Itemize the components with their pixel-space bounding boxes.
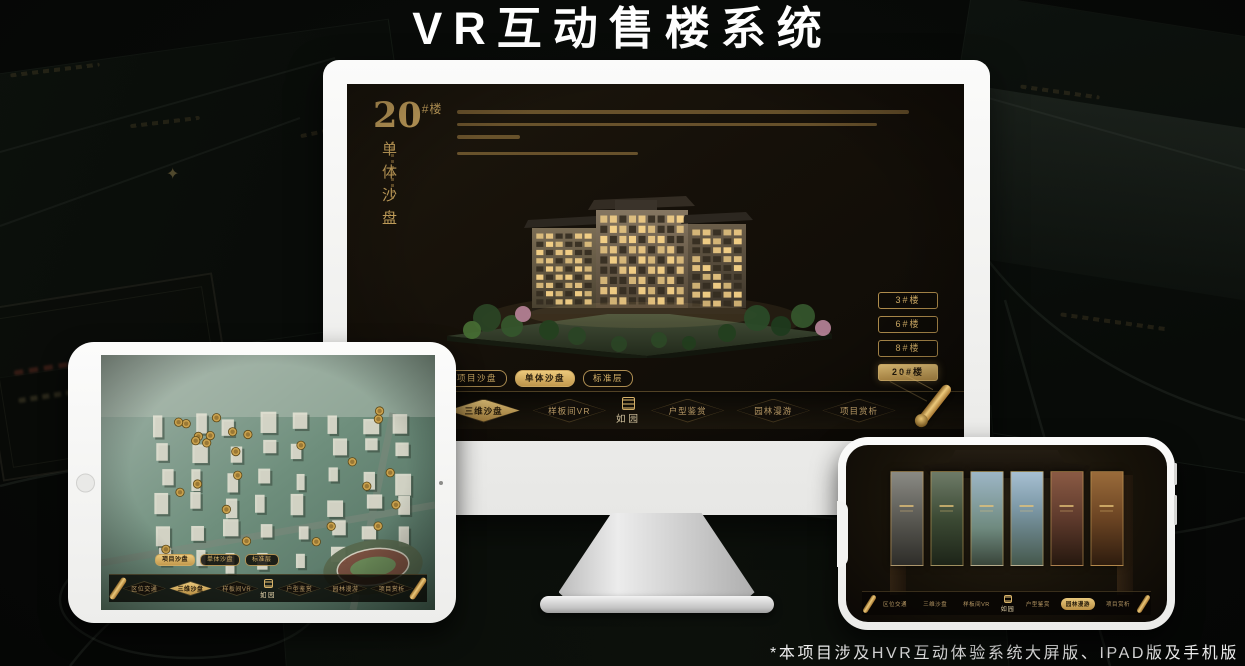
- nav-item-户型鉴赏[interactable]: 户型鉴赏: [1021, 598, 1055, 610]
- scene-card[interactable]: [1050, 471, 1083, 566]
- scene-card[interactable]: [890, 471, 923, 566]
- nav-item-label: 园林漫游: [332, 584, 358, 593]
- scene-card[interactable]: [1010, 471, 1043, 566]
- brand-logo[interactable]: 如园: [260, 579, 276, 599]
- hero-english-caption: [391, 142, 394, 202]
- brand-logo[interactable]: 如园: [616, 397, 641, 425]
- brand-name: 如园: [616, 411, 641, 425]
- scroll-menu-icon[interactable]: [1136, 594, 1151, 614]
- nav-item-园林漫游[interactable]: 园林漫游: [1061, 598, 1095, 610]
- scene-card[interactable]: [970, 471, 1003, 566]
- view-tab-单体沙盘[interactable]: 单体沙盘: [515, 370, 575, 387]
- nav-item-label: 样板间VR: [548, 405, 590, 417]
- nav-item-项目赏析[interactable]: 项目赏析: [1101, 598, 1135, 610]
- nav-item-户型鉴赏[interactable]: 户型鉴赏: [276, 581, 322, 596]
- nav-item-户型鉴赏[interactable]: 户型鉴赏: [649, 399, 727, 423]
- tablet-screen: 项目沙盘单体沙盘标准层 区位交通三维沙盘样板间VR如园户型鉴赏园林漫游项目赏析: [101, 355, 435, 610]
- nav-item-园林漫游[interactable]: 园林漫游: [734, 399, 812, 423]
- building-unit: #楼: [422, 102, 443, 116]
- footnote-text: *本项目涉及HVR互动体验系统大屏版、IPAD版及手机版: [770, 639, 1239, 663]
- nav-item-label: 三维沙盘: [465, 405, 503, 417]
- nav-item-label: 园林漫游: [754, 405, 792, 417]
- monitor-stand-base: [540, 596, 774, 613]
- nav-item-三维沙盘[interactable]: 三维沙盘: [445, 399, 523, 423]
- view-tab-group: 项目沙盘单体沙盘标准层: [447, 370, 633, 387]
- scene-card[interactable]: [1090, 471, 1123, 566]
- page: ✦ VR互动售楼系统 20#楼 单体沙盘: [0, 0, 1245, 666]
- floor-button-group: 3#楼6#楼8#楼20#楼: [878, 292, 938, 381]
- building-number: 20: [373, 95, 422, 136]
- view-tab-标准层[interactable]: 标准层: [245, 554, 279, 566]
- brand-seal-icon: [622, 397, 635, 410]
- tablet-device: 项目沙盘单体沙盘标准层 区位交通三维沙盘样板间VR如园户型鉴赏园林漫游项目赏析: [68, 342, 456, 623]
- brand-name: 如园: [260, 589, 276, 599]
- tablet-overlay: 项目沙盘单体沙盘标准层 区位交通三维沙盘样板间VR如园户型鉴赏园林漫游项目赏析: [101, 554, 435, 602]
- building-caption: 单体沙盘: [379, 141, 400, 243]
- nav-item-样板间VR[interactable]: 样板间VR: [214, 581, 260, 596]
- phone-screen: 区位交通三维沙盘样板间VR如园户型鉴赏园林漫游项目赏析: [846, 445, 1167, 622]
- nav-item-样板间VR[interactable]: 样板间VR: [530, 399, 608, 423]
- brand-logo[interactable]: 如园: [1001, 595, 1015, 613]
- nav-item-label: 样板间VR: [222, 584, 251, 593]
- brand-name: 如园: [1001, 604, 1015, 613]
- nav-item-label: 项目赏析: [379, 584, 405, 593]
- nav-item-label: 户型鉴赏: [669, 405, 707, 417]
- nav-item-label: 户型鉴赏: [286, 584, 312, 593]
- nav-item-样板间VR[interactable]: 样板间VR: [958, 598, 995, 610]
- view-tab-项目沙盘[interactable]: 项目沙盘: [447, 370, 507, 387]
- nav-item-label: 项目赏析: [840, 405, 878, 417]
- tablet-view-tabs: 项目沙盘单体沙盘标准层: [155, 554, 279, 566]
- scroll-menu-icon[interactable]: [862, 594, 877, 614]
- view-tab-标准层[interactable]: 标准层: [583, 370, 633, 387]
- brand-seal-icon: [264, 579, 273, 588]
- floor-button-8#楼[interactable]: 8#楼: [878, 340, 938, 357]
- phone-side-button[interactable]: [1174, 495, 1177, 525]
- nav-item-项目赏析[interactable]: 项目赏析: [820, 399, 898, 423]
- view-tab-项目沙盘[interactable]: 项目沙盘: [155, 554, 195, 566]
- phone-device: 区位交通三维沙盘样板间VR如园户型鉴赏园林漫游项目赏析: [838, 437, 1175, 630]
- nav-item-label: 三维沙盘: [177, 584, 203, 593]
- nav-item-区位交通[interactable]: 区位交通: [121, 581, 167, 596]
- nav-item-三维沙盘[interactable]: 三维沙盘: [918, 598, 952, 610]
- floor-button-6#楼[interactable]: 6#楼: [878, 316, 938, 333]
- view-tab-单体沙盘[interactable]: 单体沙盘: [200, 554, 240, 566]
- description-paragraph: [457, 110, 909, 164]
- nav-item-三维沙盘[interactable]: 三维沙盘: [168, 581, 214, 596]
- phone-notch: [837, 501, 848, 567]
- nav-item-项目赏析[interactable]: 项目赏析: [369, 581, 415, 596]
- tablet-home-button[interactable]: [76, 473, 95, 492]
- phone-navbar: 区位交通三维沙盘样板间VR如园户型鉴赏园林漫游项目赏析: [862, 591, 1151, 615]
- tablet-camera: [439, 481, 443, 485]
- scene-card-strip: [890, 471, 1123, 566]
- nav-item-区位交通[interactable]: 区位交通: [878, 598, 912, 610]
- page-title: VR互动售楼系统: [0, 0, 1245, 58]
- building-render: [427, 168, 847, 358]
- nav-item-label: 区位交通: [131, 584, 157, 593]
- nav-item-园林漫游[interactable]: 园林漫游: [323, 581, 369, 596]
- brand-seal-icon: [1004, 595, 1012, 603]
- scene-card[interactable]: [930, 471, 963, 566]
- phone-side-button[interactable]: [1174, 463, 1177, 485]
- floor-button-3#楼[interactable]: 3#楼: [878, 292, 938, 309]
- tablet-navbar: 区位交通三维沙盘样板间VR如园户型鉴赏园林漫游项目赏析: [109, 574, 427, 602]
